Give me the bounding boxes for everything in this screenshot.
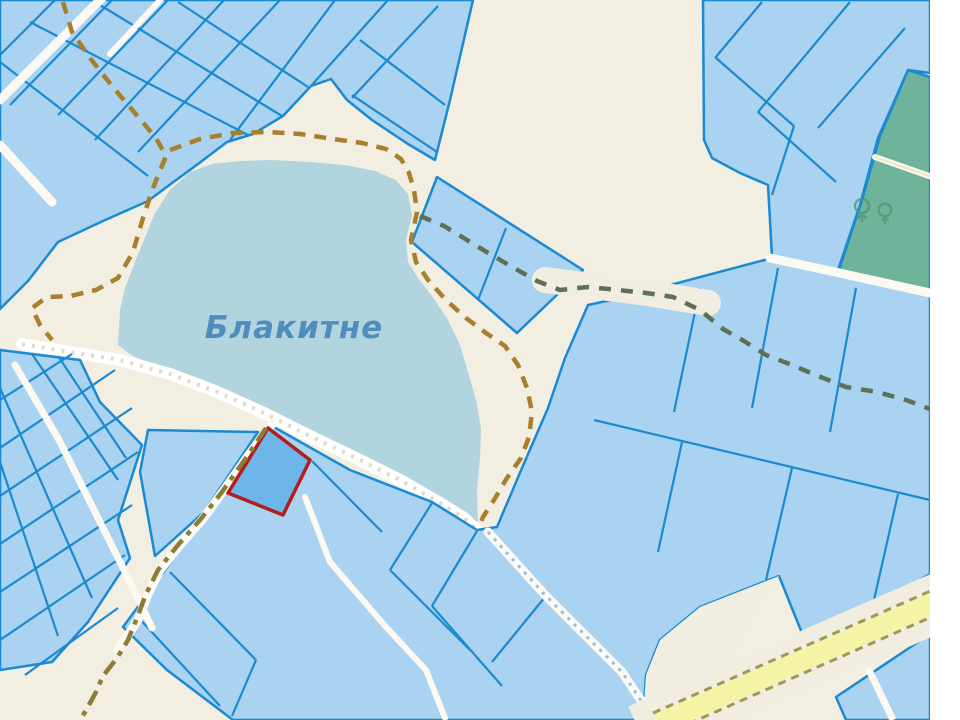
cadastral-map[interactable]: Блакитне	[0, 0, 960, 720]
lake-label: Блакитне	[205, 310, 383, 346]
map-margin	[930, 0, 960, 720]
map-canvas[interactable]: Блакитне	[0, 0, 960, 720]
